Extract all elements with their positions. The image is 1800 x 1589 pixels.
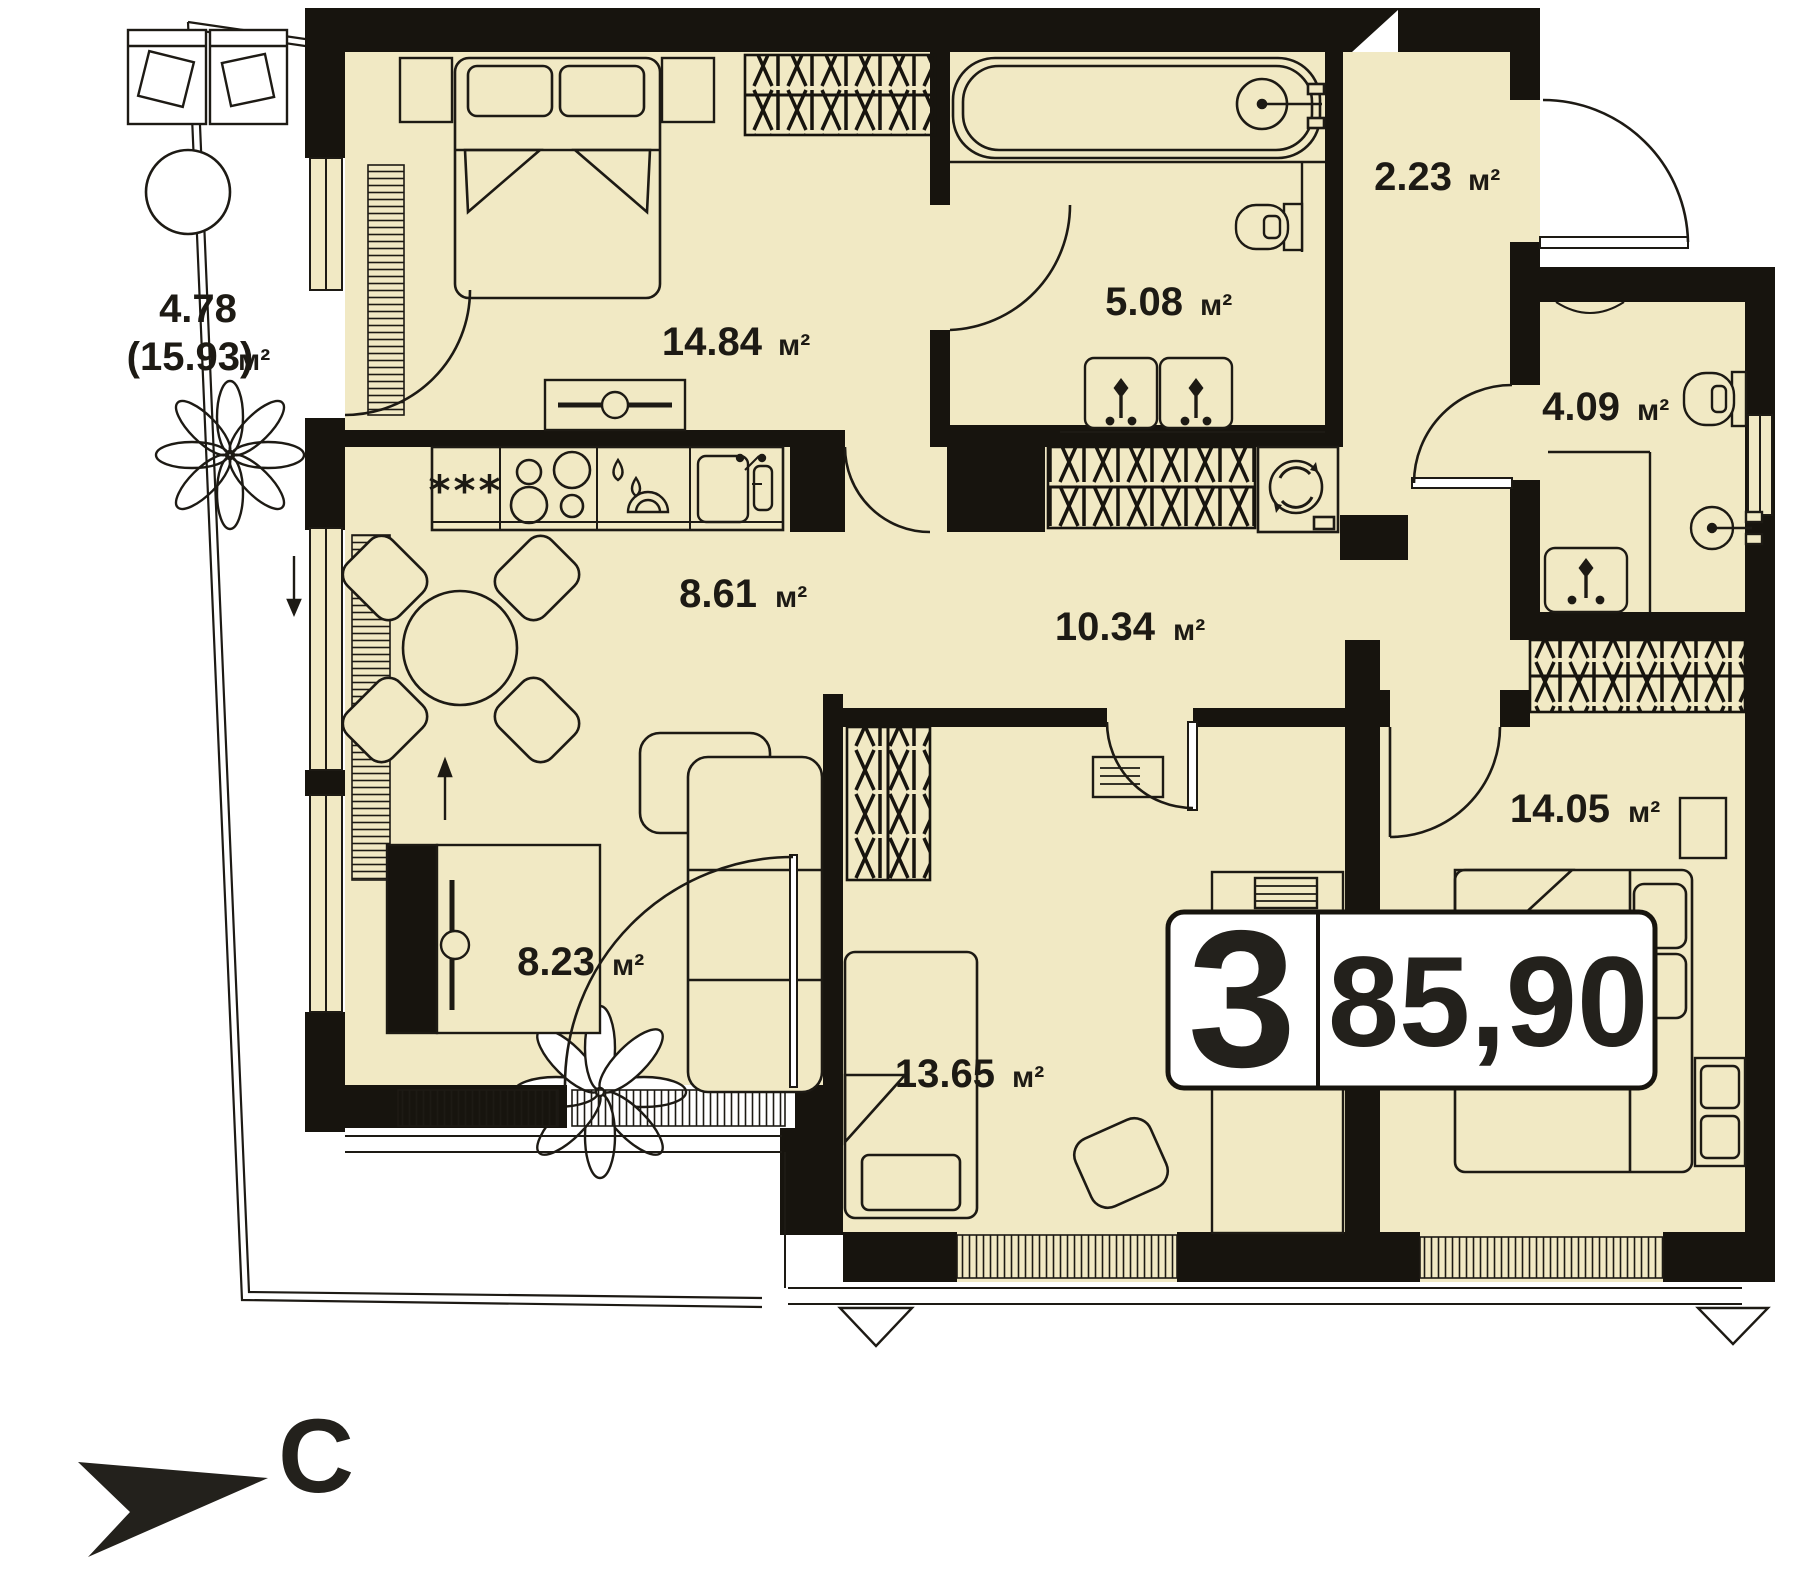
balcony-area-total: (15.93) — [127, 335, 254, 379]
bedroom-dresser — [545, 380, 685, 430]
toilet — [1236, 204, 1302, 250]
room-label-living: 8.23 — [517, 940, 595, 984]
room-unit: м² — [1468, 164, 1500, 197]
floor-plan-drawing: 14.84 м² 5.08 м² 2.23 м² 4.09 м² 8.61 м²… — [0, 0, 1800, 1589]
room-unit: м² — [1628, 796, 1660, 829]
room-label-kids: 13.65 — [895, 1052, 995, 1096]
room-unit: м² — [1200, 289, 1232, 322]
north-label: С — [278, 1398, 354, 1515]
area-badge: 3 85,90 — [1168, 890, 1655, 1108]
floor-plan-page: 14.84 м² 5.08 м² 2.23 м² 4.09 м² 8.61 м²… — [0, 0, 1800, 1589]
room-label-wc: 4.09 — [1542, 385, 1620, 429]
plant-icon — [156, 381, 304, 529]
bathtub — [953, 58, 1324, 158]
room-unit: м² — [612, 949, 644, 982]
room-unit: м² — [1012, 1061, 1044, 1094]
fridge-symbol: *** — [429, 466, 504, 515]
room-label-entry: 2.23 — [1374, 155, 1452, 199]
room-label-hallway: 10.34 — [1055, 605, 1156, 649]
room-unit: м² — [1173, 614, 1205, 647]
room-unit: м² — [775, 581, 807, 614]
room-unit: м² — [238, 344, 270, 377]
double-bed — [455, 58, 660, 298]
tv-stand — [387, 845, 600, 1033]
room-label-kitchen: 8.61 — [679, 572, 757, 616]
room-unit: м² — [1637, 394, 1669, 427]
sun-loungers — [128, 30, 287, 124]
room-label-bedroom: 14.84 — [662, 320, 763, 364]
balcony-table — [146, 150, 230, 234]
washing-machine-icon — [1258, 447, 1338, 532]
balcony-area: 4.78 — [159, 287, 237, 331]
badge-rooms-count: 3 — [1188, 890, 1296, 1108]
north-arrow-icon — [78, 1462, 268, 1557]
room-label-bedroom2: 14.05 — [1510, 787, 1610, 831]
room-unit: м² — [778, 329, 810, 362]
toilet-2 — [1684, 372, 1746, 426]
compass: С — [78, 1398, 354, 1557]
wc-sink — [1545, 548, 1627, 612]
window-sill-markers — [840, 1308, 1768, 1346]
room-label-bathroom: 5.08 — [1105, 280, 1183, 324]
badge-total-area: 85,90 — [1328, 931, 1648, 1074]
